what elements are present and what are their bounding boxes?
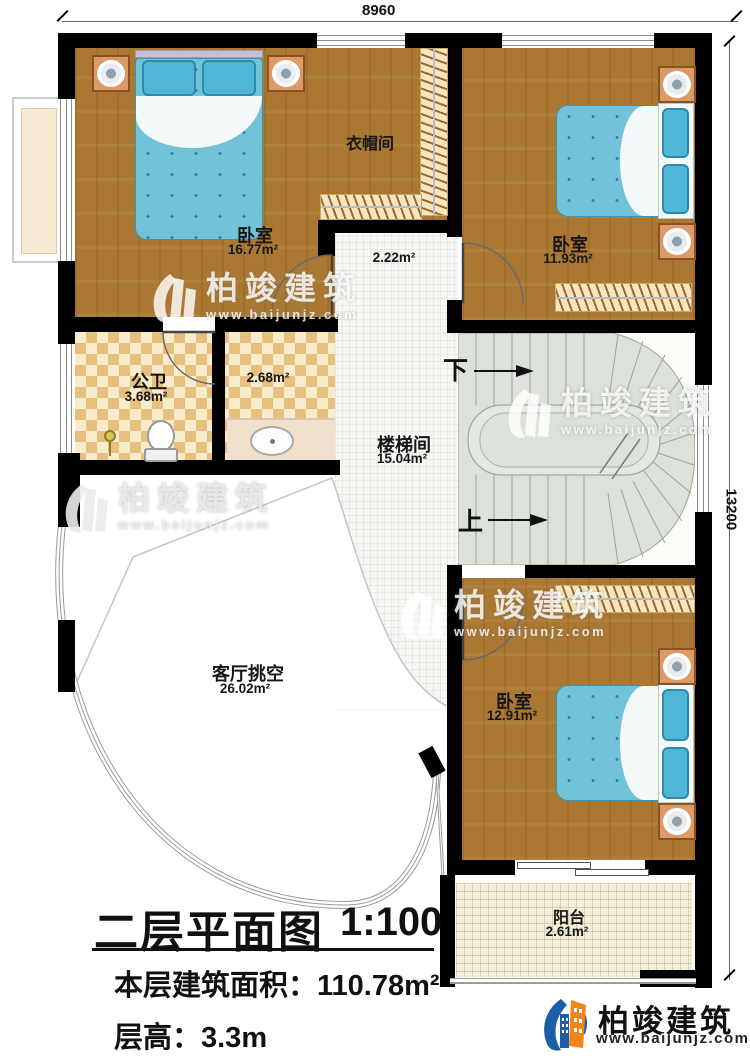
- stair-up-label: 上: [458, 508, 483, 536]
- room-area-stair-hall: 15.04m²: [377, 451, 427, 466]
- room-area-bedroom-top-right: 11.93m²: [543, 251, 593, 266]
- room-area-living-void: 26.02m²: [220, 681, 270, 696]
- floor-height-text: 层高：3.3m: [114, 1014, 267, 1056]
- room-area-bedroom-bottom-right: 12.91m²: [487, 708, 537, 723]
- room-area-bedroom-top-left: 16.77m²: [228, 242, 278, 257]
- title-underline: [92, 948, 434, 951]
- brand-logo-icon: [540, 994, 592, 1052]
- up-arrow-icon: [530, 514, 548, 526]
- room-area-bathroom: 3.68m²: [125, 389, 168, 404]
- room-area-balcony: 2.61m²: [546, 924, 589, 939]
- floor-area-text: 本层建筑面积：110.78m²: [114, 962, 440, 1004]
- stair-down-label: 下: [443, 357, 468, 385]
- floor-plan: 下 上 柏竣建筑 www.baijunjz.com 柏竣建筑 www.baiju…: [0, 0, 750, 1060]
- dimension-right: 13200: [723, 489, 740, 529]
- down-arrow-icon: [516, 365, 534, 377]
- dimension-top: 8960: [362, 2, 395, 19]
- room-area-hallway: 2.22m²: [373, 250, 416, 265]
- brand-url: www.baijunjz.com: [596, 1030, 749, 1047]
- plan-scale: 1:100: [340, 900, 442, 945]
- dimension-line-top: [62, 21, 738, 22]
- room-area-washroom: 2.68m²: [247, 370, 290, 385]
- room-label-cloakroom: 衣帽间: [346, 130, 394, 154]
